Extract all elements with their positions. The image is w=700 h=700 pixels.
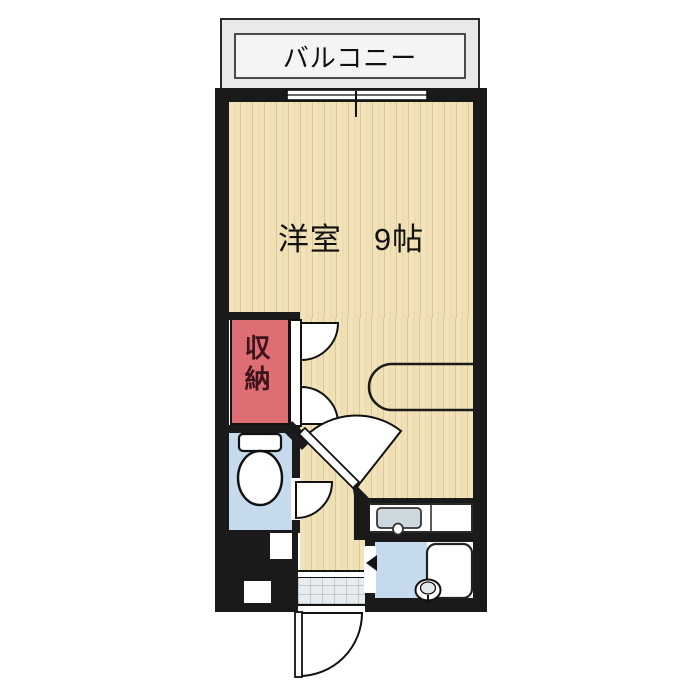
balcony-area: バルコニー <box>220 18 480 88</box>
wall-bottom-right <box>365 598 487 612</box>
entry-swing-door-icon <box>295 612 362 677</box>
toilet-room-floor <box>229 433 292 533</box>
pipe-space-box-1 <box>270 533 292 559</box>
wall-left <box>215 88 229 612</box>
wall-top <box>215 88 487 102</box>
entrance-threshold <box>298 604 365 613</box>
wall-closet-top <box>229 312 300 320</box>
bathroom-wet-floor <box>375 540 427 598</box>
wall-right <box>473 88 487 612</box>
floor-plan: バルコニー 収納 <box>0 0 700 700</box>
wall-kitchen-bottom <box>365 533 473 542</box>
kitchen-counter <box>368 503 473 533</box>
wall-toilet-right <box>292 433 300 533</box>
closet-label: 収納 <box>243 334 269 396</box>
entrance-step <box>298 570 365 578</box>
main-room-floor <box>229 102 473 318</box>
wall-bathroom-left <box>365 533 375 598</box>
wall-closet-bottom <box>229 425 300 433</box>
entrance-tile <box>298 578 365 604</box>
balcony-label: バルコニー <box>283 38 417 75</box>
pipe-space-box-2 <box>244 581 271 603</box>
main-room-label: 洋室 9帖 <box>229 214 473 259</box>
balcony-panel: バルコニー <box>234 33 466 79</box>
